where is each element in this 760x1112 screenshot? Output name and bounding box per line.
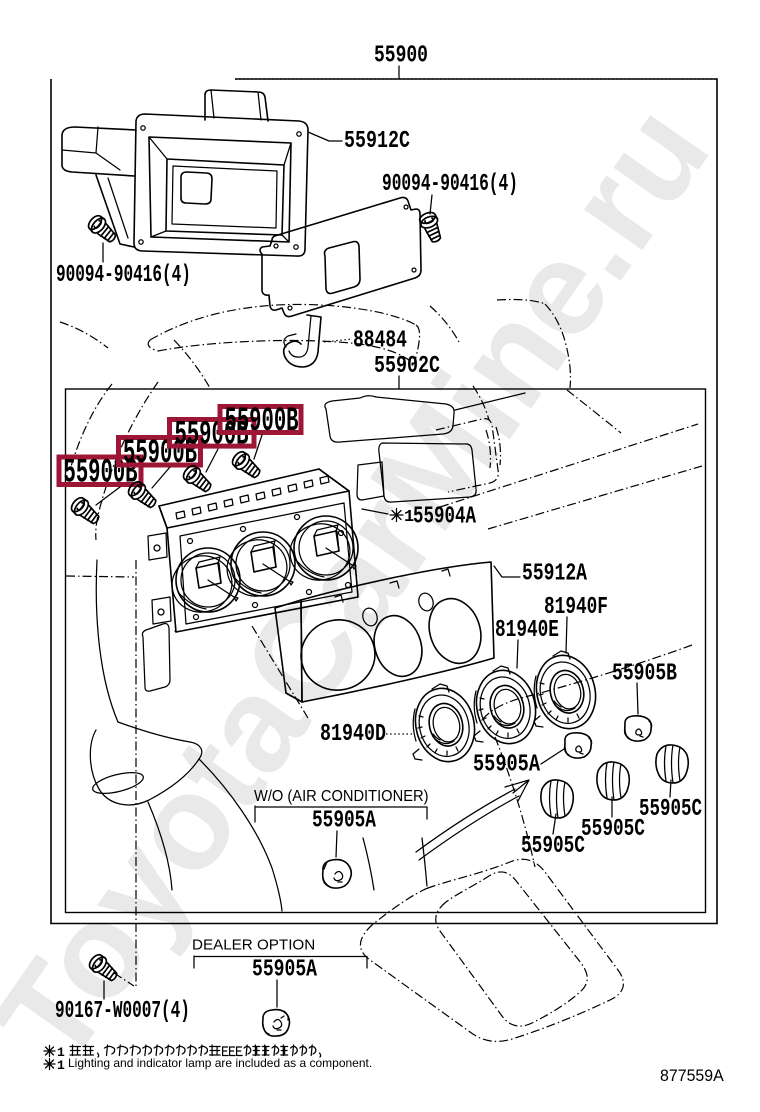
svg-text:DEALER OPTION: DEALER OPTION xyxy=(192,937,315,954)
svg-text:90094-90416(4): 90094-90416(4) xyxy=(382,171,518,198)
svg-text:81940E: 81940E xyxy=(495,617,559,644)
svg-text:90167-W0007(4): 90167-W0007(4) xyxy=(55,998,190,1025)
svg-text:W/O (AIR CONDITIONER): W/O (AIR CONDITIONER) xyxy=(254,788,428,805)
svg-text:88484: 88484 xyxy=(353,327,407,354)
svg-text:55905A: 55905A xyxy=(312,807,376,834)
svg-text:55905A: 55905A xyxy=(473,750,541,778)
svg-text:55905C: 55905C xyxy=(521,833,585,860)
svg-text:81940D: 81940D xyxy=(320,721,386,748)
svg-text:55902C: 55902C xyxy=(374,353,440,380)
svg-text:90094-90416(4): 90094-90416(4) xyxy=(56,262,191,289)
svg-text:55912C: 55912C xyxy=(344,128,410,155)
svg-text:55912A: 55912A xyxy=(522,560,587,587)
svg-text:Lighting and indicator lamp ar: Lighting and indicator lamp are included… xyxy=(68,1056,372,1070)
svg-text:55905C: 55905C xyxy=(639,795,702,823)
svg-text:55904A: 55904A xyxy=(413,503,476,531)
svg-text:55900: 55900 xyxy=(374,42,428,69)
svg-text:55905B: 55905B xyxy=(612,660,677,687)
svg-text:55905C: 55905C xyxy=(581,816,645,843)
svg-text:1: 1 xyxy=(57,1058,65,1073)
svg-text:55905A: 55905A xyxy=(252,956,317,983)
svg-text:877559A: 877559A xyxy=(660,1067,724,1086)
